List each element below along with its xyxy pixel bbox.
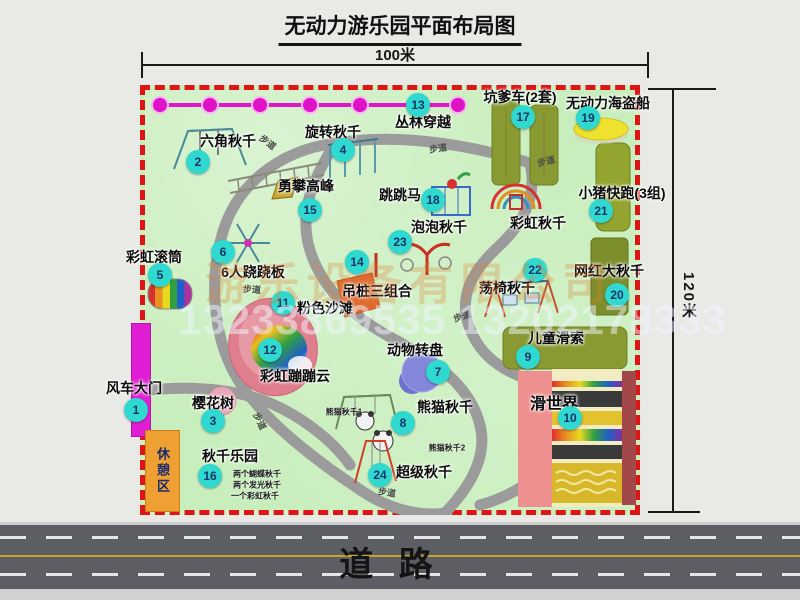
dimension-tick: [648, 511, 700, 513]
sub-label-panda-swing-1: 熊猫秋千1: [326, 407, 362, 418]
dimension-top-label: 100米: [375, 44, 415, 65]
trail-label: 步道: [428, 140, 448, 155]
feature-badge-bubble-swing: 23: [388, 230, 412, 254]
feature-label-animal-carousel: 动物转盘: [387, 340, 443, 360]
road-label: 道 路: [339, 537, 440, 586]
feature-badge-seesaw-6p: 6: [211, 240, 235, 264]
sub-label-swing-park-line3: 一个彩虹秋千: [231, 491, 279, 502]
feature-badge-panda-swing: 8: [391, 411, 415, 435]
trail-label: 步道: [250, 410, 270, 432]
trail-label: 步道: [257, 131, 279, 152]
feature-badge-chair-swing: 22: [523, 258, 547, 282]
dimension-right-line: [672, 89, 674, 513]
feature-label-swing-park: 秋千乐园: [202, 446, 258, 466]
feature-label-bubble-swing: 泡泡秋千: [411, 217, 467, 237]
feature-badge-pig-run: 21: [589, 199, 613, 223]
page-title: 无动力游乐园平面布局图: [279, 10, 522, 46]
feature-badge-hexagon-swing: 2: [186, 150, 210, 174]
trail-label: 步道: [243, 282, 262, 296]
sub-label-panda-swing-2: 熊猫秋千2: [429, 443, 465, 454]
feature-badge-cherry-tree: 3: [201, 409, 225, 433]
trail-label: 步道: [536, 153, 557, 170]
feature-badge-slide-world: 10: [558, 406, 582, 430]
feature-label-pink-beach: 粉色沙滩: [297, 298, 353, 318]
dimension-tick: [141, 52, 143, 78]
feature-badge-kids-zipline: 9: [516, 345, 540, 369]
feature-badge-rotating-swing: 4: [331, 138, 355, 162]
feature-badge-big-swing: 20: [605, 283, 629, 307]
feature-badge-climb-peak: 15: [298, 198, 322, 222]
dimension-tick: [647, 52, 649, 78]
feature-badge-pit-car: 17: [511, 105, 535, 129]
feature-label-pit-car: 坑爹车(2套): [483, 87, 556, 107]
feature-label-hexagon-swing: 六角秋千: [200, 131, 256, 151]
dimension-top-line: [142, 64, 648, 66]
feature-badge-windmill-gate: 1: [124, 398, 148, 422]
feature-badge-pirate-ship: 19: [576, 106, 600, 130]
dimension-tick: [648, 88, 716, 90]
feature-badge-super-swing: 24: [368, 463, 392, 487]
feature-label-windmill-gate: 风车大门: [106, 378, 162, 398]
marker-layer: 丛林穿越13六角秋千2旋转秋千4坑爹车(2套)17无动力海盗船19小猪快跑(3组…: [140, 85, 640, 515]
feature-badge-animal-carousel: 7: [426, 360, 450, 384]
trail-label: 步道: [451, 307, 472, 325]
feature-label-rotating-swing: 旋转秋千: [305, 122, 361, 142]
feature-badge-swing-park: 16: [198, 464, 222, 488]
feature-badge-rainbow-cloud: 12: [258, 338, 282, 362]
feature-label-rainbow-cloud: 彩虹蹦蹦云: [260, 366, 330, 386]
sub-label-swing-park-line1: 两个蝴蝶秋千: [233, 469, 281, 480]
park-map-inner: 休憩区 丛林穿越13六角秋千2旋转秋千4坑爹车(2套)17无动力海盗船19小猪快…: [140, 85, 640, 515]
trail-label: 步道: [377, 484, 397, 499]
feature-badge-jungle-crossing: 13: [406, 93, 430, 117]
sub-label-swing-park-line2: 两个发光秋千: [233, 480, 281, 491]
feature-label-panda-swing: 熊猫秋千: [417, 397, 473, 417]
feature-label-big-swing: 网红大秋千: [574, 261, 644, 281]
feature-label-rainbow-swing: 彩虹秋千: [510, 213, 566, 233]
road: 道 路: [0, 522, 800, 592]
feature-badge-hanging-pile: 14: [345, 250, 369, 274]
feature-label-kids-zipline: 儿童滑索: [528, 328, 584, 348]
feature-badge-rainbow-roller: 5: [148, 263, 172, 287]
park-map: 休憩区 丛林穿越13六角秋千2旋转秋千4坑爹车(2套)17无动力海盗船19小猪快…: [140, 85, 640, 515]
feature-badge-pink-beach: 11: [271, 291, 295, 315]
bottom-strip: [0, 592, 800, 600]
feature-label-jump-horse: 跳跳马: [379, 185, 421, 205]
dimension-right-label: 120米: [678, 272, 699, 320]
feature-label-pig-run: 小猪快跑(3组): [578, 183, 665, 203]
feature-label-climb-peak: 勇攀高峰: [278, 176, 334, 196]
feature-badge-jump-horse: 18: [421, 188, 445, 212]
feature-label-super-swing: 超级秋千: [396, 462, 452, 482]
feature-label-chair-swing: 荡椅秋千: [479, 278, 535, 298]
feature-label-seesaw-6p: 6人跷跷板: [221, 262, 285, 282]
